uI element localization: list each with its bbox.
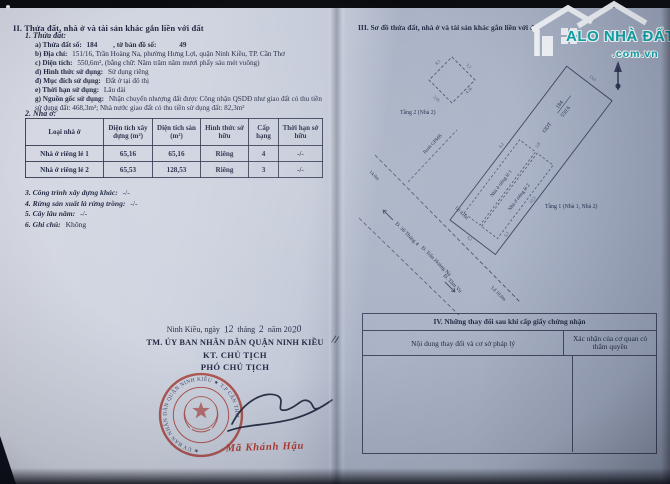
parcel-item-a: a) Thửa đất số: 184 , tờ bản đồ số: 49 [35,41,327,50]
land-certificate-photo: II. Thửa đất, nhà ở và tài sản khác gắn … [0,0,670,484]
col-house-type: Loại nhà ở [26,119,104,146]
dim-label: 4,2 [465,235,473,243]
brand-domain: .com.vn [612,48,659,60]
road-label-tranhoangna: Đ. Trần Hoàng Na [420,244,454,278]
section-iv-header-row: Nội dung thay đổi và cơ sở pháp lý Xác n… [363,331,656,356]
dim-label: 2,8 [534,141,542,149]
road-label-30thang4: Đ. 30 Tháng 4 [394,221,420,247]
handwritten-year: 20 [291,324,302,335]
place-date-line: Ninh Kiều, ngày 12 tháng 2 năm 2020 [118,325,352,335]
parcel-item-c: c) Diện tích: 550,6m², (bằng chữ: Năm tr… [35,59,327,68]
parcel-item-d: d) Hình thức sử dụng: Sử dụng riêng [35,68,327,77]
col-floor-area: Diện tích sàn (m²) [153,119,201,146]
parcel-boundary [450,66,612,254]
handwritten-day: 12 [223,324,234,335]
col-built-area: Diện tích xây dựng (m²) [104,119,153,146]
col-grade: Cấp hạng [249,119,279,146]
road-width-label-2: Lộ 10,0m [490,286,507,303]
item-forest: 4. Rừng sản xuất là rừng trồng: -/- [25,199,138,210]
gpmb-boundary-label: Ranh GPMB [423,134,444,156]
road-width-label: Lộ 4,0m [454,206,469,221]
house-subheading: 2. Nhà ở: [25,109,56,118]
col-term: Thời hạn sở hữu [279,119,323,146]
brand-name: ALO NHÀ ĐẤT [566,28,670,45]
title-line-1: KT. CHỦ TỊCH [120,350,350,360]
brand-watermark: ALO NHÀ ĐẤT .com.vn [528,0,670,70]
handwritten-month: 2 [258,325,264,336]
frontage-dim-label: 14,0m [368,170,380,182]
parcel-item-dd: đ) Mục đích sử dụng: Đất ở tại đô thị [35,77,327,86]
table-row: Nhà ở riêng lẻ 2 65,53 128,53 Riêng 3 -/… [26,162,323,178]
section-iv-title: IV. Những thay đổi sau khi cấp giấy chứn… [363,314,656,331]
dim-label: 4,26 [464,85,474,95]
parcel-subheading: 1. Thửa đất: [25,31,66,40]
road-edge-outer [359,218,495,315]
dim-label: 8,1 [434,58,442,66]
authority-line: TM. ỦY BAN NHÂN DÂN QUẬN NINH KIỀU [120,338,350,347]
dim-label: 13,6 [588,74,598,84]
other-items: 3. Công trình xây dựng khác: -/- 4. Rừng… [25,188,138,230]
title-line-2: PHÓ CHỦ TỊCH [120,362,350,372]
house-table-header-row: Loại nhà ở Diện tích xây dựng (m²) Diện … [26,119,323,146]
seal-star-icon [192,402,210,419]
house-table: Loại nhà ở Diện tích xây dựng (m²) Diện … [25,118,323,178]
col-change-content: Nội dung thay đổi và cơ sở pháp lý [363,331,564,355]
dim-label: 5,5 [503,231,511,239]
parcel-landuse-code: ODT [542,121,554,134]
item-perennial: 5. Cây lâu năm: -/- [25,209,138,220]
parcel-item-b: b) Địa chỉ: 151/16, Trần Hoàng Na, phườn… [35,50,327,59]
parcel-items: a) Thửa đất số: 184 , tờ bản đồ số: 49 b… [35,41,327,113]
floor2-label: Tầng 2 (Nhà 2) [400,109,436,116]
section-iv-table: IV. Những thay đổi sau khi cấp giấy chứn… [362,313,657,454]
item-notes: 6. Ghi chú: Không [25,220,138,231]
dim-label: 3,2 [465,62,473,70]
section-iv-empty-body [363,356,656,452]
col-authority-confirm: Xác nhận của cơ quan có thẩm quyền [564,331,656,355]
dim-label: 2,05 [432,94,442,104]
highlight-dot [6,5,10,9]
floor1-label: Tầng 1 (Nhà 1, Nhà 2) [545,203,598,210]
house1-label: Nhà ở riêng lẻ 1 [490,169,514,198]
house2-label: Nhà ở riêng lẻ 2 [508,183,532,212]
parcel-group: Nhà ở riêng lẻ 1 Nhà ở riêng lẻ 2 ODT 18… [441,55,618,259]
col-ownership: Hình thức sở hữu [201,119,249,146]
parcel-item-e: e) Thời hạn sử dụng: Lâu dài [35,86,327,95]
gpmb-boundary-line [408,130,457,182]
signature-ink [224,384,336,442]
table-row: Nhà ở riêng lẻ 1 65,16 65,16 Riêng 4 -/- [26,146,323,162]
parcel-item-g: g) Nguồn gốc sử dụng: Nhận chuyển nhượng… [35,95,327,113]
item-other-construction: 3. Công trình xây dựng khác: -/- [25,188,138,199]
cadastral-sketch: 8,1 3,2 2,05 4,26 Tầng 2 (Nhà 2) Nhà ở r… [345,50,670,315]
